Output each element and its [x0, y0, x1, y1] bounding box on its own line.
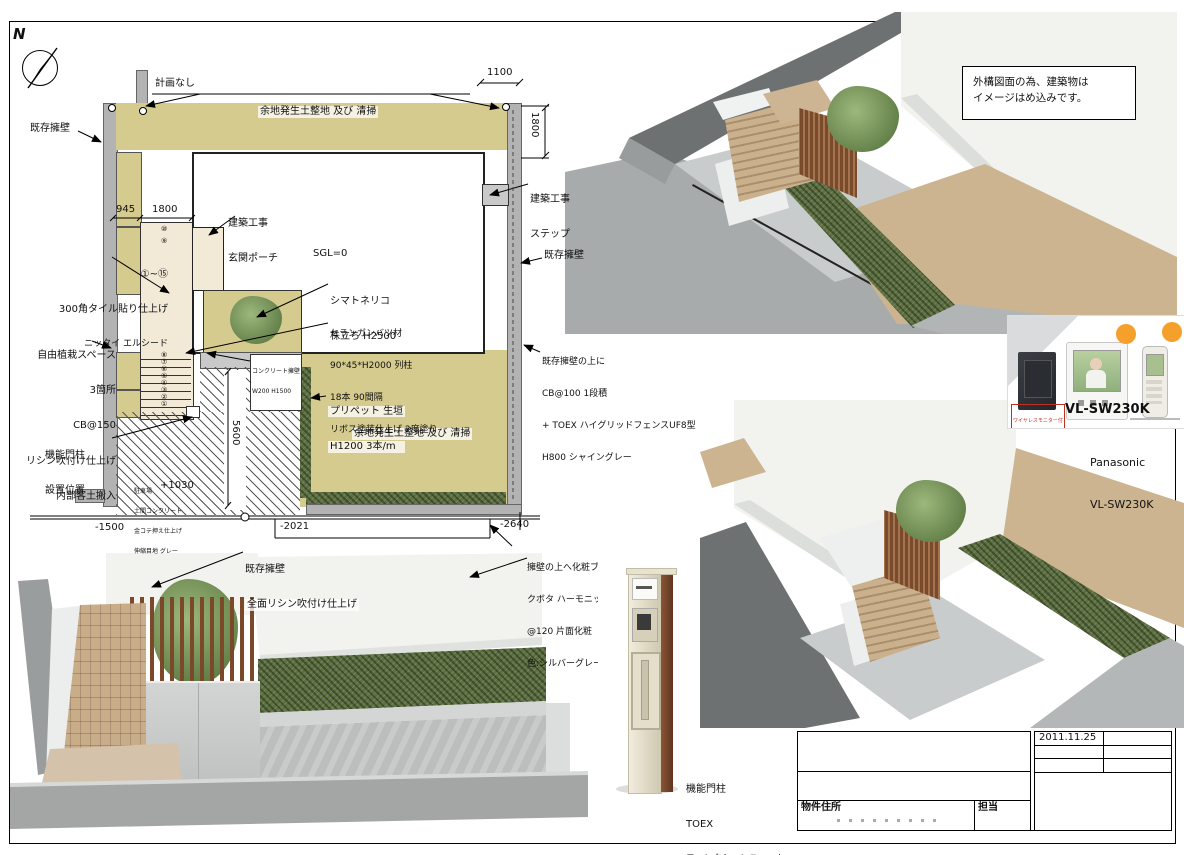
- nameplate: [632, 578, 658, 600]
- tile-finish: 300角タイル貼り仕上げ: [18, 304, 168, 316]
- panasonic-card: ワイヤレスモニター付 テレビドアホン VL-SW230K: [1008, 316, 1184, 428]
- fine-print: [1130, 418, 1180, 420]
- date-value: 2011.11.25: [1039, 732, 1096, 744]
- staff-label: 担当: [978, 802, 998, 814]
- level-m1500: -1500: [95, 522, 124, 534]
- tagline: ワイヤレスモニター付 テレビドアホン: [1011, 404, 1065, 428]
- step-block: [482, 184, 509, 206]
- entrance-porch: [192, 227, 224, 291]
- existing-wall-right-label: 既存擁壁: [544, 250, 584, 262]
- wall-finish-label: 既存擁壁 全面リシン吹付け仕上げ: [245, 540, 359, 634]
- level-m2021: -2021: [280, 521, 309, 533]
- soil-note-top: 余地発生土整地 及び 清掃: [258, 106, 378, 118]
- redacted-address: [837, 819, 937, 822]
- porch-label: 建築工事 玄関ポーチ: [228, 194, 278, 288]
- post-wood-strip: [661, 572, 673, 792]
- dim-945: 945: [116, 204, 135, 216]
- tree: [827, 86, 899, 152]
- intercom-lens: [637, 614, 651, 630]
- level-1030: +1030: [160, 480, 194, 492]
- note-line-1: 外構図面の為、建築物は: [973, 75, 1135, 91]
- handset-keys: [1146, 380, 1162, 404]
- dim-5600: 5600: [229, 420, 241, 445]
- render-top-right: [565, 12, 1177, 334]
- fence-on-wall-label: 既存擁壁の上に CB@100 1段積 + TOEX ハイグリッドフェンスUF8型…: [542, 336, 696, 485]
- tile-range: ①~⑮: [18, 269, 168, 281]
- mail-slot-door: [641, 660, 649, 720]
- post-cap: [626, 568, 677, 575]
- wall-strip-bottom-right: [306, 504, 522, 515]
- gate-wall-seam: [198, 683, 199, 785]
- address-label: 物件住所: [801, 802, 841, 814]
- dim-1100: 1100: [487, 67, 512, 79]
- drawing-sheet: N 計画なし 余地発生土整地 及び 清掃 余地発生土整地 及び 清掃 SGL=0…: [0, 0, 1184, 855]
- panasonic-caption: Panasonic VL-SW230K: [1090, 427, 1154, 541]
- nameplate-text-bar: [636, 586, 652, 589]
- concrete-wall-label: コンクリート擁壁 W200 H1500: [250, 354, 302, 411]
- handset-screen: [1146, 354, 1164, 376]
- title-block: 2011.11.25 物件住所 担当: [797, 729, 1172, 831]
- dim-1800-right: 1800: [528, 112, 540, 137]
- wood-slat-fence: [130, 597, 258, 683]
- gate-post-photo: [598, 556, 694, 804]
- badge-icon: [1116, 324, 1136, 344]
- existing-wall-left-label: 既存擁壁: [30, 123, 70, 135]
- step-number: ⑩: [161, 225, 167, 233]
- step-number: ①: [161, 400, 167, 408]
- step-number: ⑨: [161, 237, 167, 245]
- gate-post-marker: [186, 406, 200, 418]
- hedge-label: プリペット 生垣 H1200 3本/m: [328, 382, 405, 476]
- badge-icon: [1162, 322, 1182, 342]
- level-m2640: -2640: [500, 519, 529, 531]
- privet-hedge-bottom: [306, 492, 506, 504]
- note-box: 外構図面の為、建築物は イメージはめ込みです。: [962, 66, 1136, 120]
- no-plan-label: 計画なし: [155, 78, 195, 90]
- model-number: VL-SW230K: [1065, 402, 1150, 417]
- screen-person-body: [1086, 370, 1106, 388]
- dim-1800-left: 1800: [152, 204, 177, 216]
- compass-circle: [22, 50, 58, 86]
- north-label: N: [13, 26, 26, 44]
- existing-wall-right-band: [507, 103, 522, 512]
- wall-stub-top: [136, 70, 148, 105]
- note-line-2: イメージはめ込みです。: [973, 91, 1135, 107]
- sgl-label: SGL=0: [313, 248, 347, 260]
- door-station-panel: [1024, 360, 1052, 398]
- screen-person: [1090, 358, 1102, 370]
- gate-post-position-label: 機能門柱 設置位置: [45, 426, 85, 520]
- gate-post-caption: 機能門柱 TOEX ファンクションユニット スリムスクエア 組合せ例 11-⑮: [686, 760, 785, 855]
